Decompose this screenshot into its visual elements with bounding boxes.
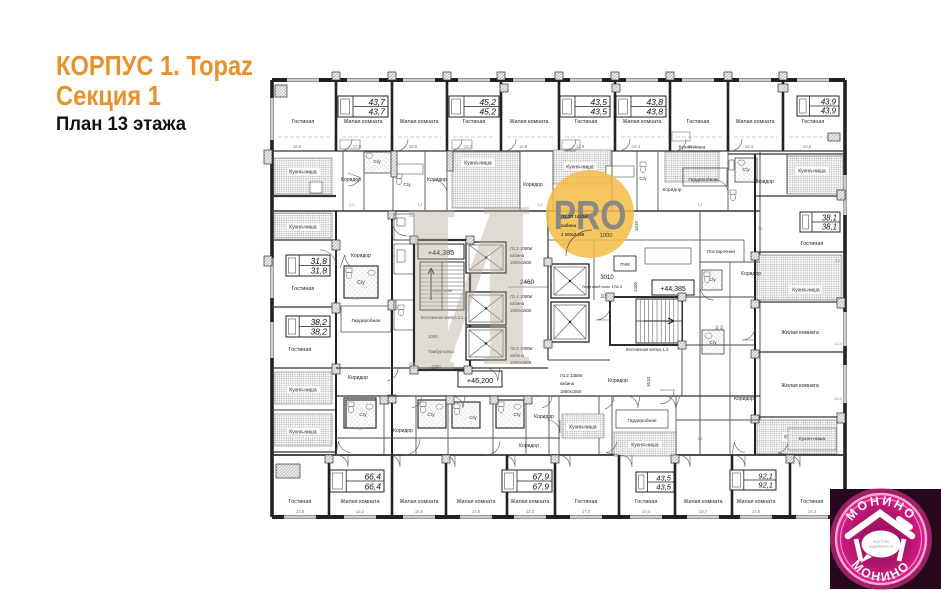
svg-text:5,8: 5,8 xyxy=(357,427,362,431)
svg-text:Жилая комната: Жилая комната xyxy=(511,499,550,505)
svg-text:Гостиная: Гостиная xyxy=(575,119,598,125)
svg-text:Постирочная: Постирочная xyxy=(707,249,735,254)
svg-text:Гостиная: Гостиная xyxy=(289,347,312,353)
svg-text:45,2: 45,2 xyxy=(479,97,496,107)
svg-text:14,2: 14,2 xyxy=(808,509,817,514)
svg-text:План 13 этажа: План 13 этажа xyxy=(56,114,186,135)
svg-text:Кухня-ниша: Кухня-ниша xyxy=(289,430,317,436)
svg-text:КОРПУС 1. Topaz: КОРПУС 1. Topaz xyxy=(56,50,253,81)
svg-text:38,1: 38,1 xyxy=(822,223,837,232)
svg-text:3010: 3010 xyxy=(600,275,614,281)
svg-text:Гостиная: Гостиная xyxy=(292,119,315,125)
svg-text:38,1: 38,1 xyxy=(822,214,837,223)
svg-text:12,4: 12,4 xyxy=(834,342,841,346)
svg-text:4,1: 4,1 xyxy=(697,203,702,207)
svg-text:1400: 1400 xyxy=(633,281,638,292)
svg-text:7,6: 7,6 xyxy=(757,227,762,231)
svg-text:13,2: 13,2 xyxy=(356,509,365,514)
svg-text:92,1: 92,1 xyxy=(758,472,773,481)
svg-text:1610: 1610 xyxy=(634,220,639,231)
svg-text:8,1: 8,1 xyxy=(835,259,840,263)
svg-text:Гостиная: Гостиная xyxy=(802,119,825,125)
svg-text:Л1.1П 1451кг: Л1.1П 1451кг xyxy=(561,214,589,219)
svg-text:1850х1550: 1850х1550 xyxy=(560,389,582,394)
svg-text:Лестничная клетка 1.2: Лестничная клетка 1.2 xyxy=(626,347,669,352)
svg-text:Жилая комната: Жилая комната xyxy=(781,330,819,336)
svg-text:Гостиная: Гостиная xyxy=(575,499,598,505)
svg-text:67,9: 67,9 xyxy=(532,482,549,492)
svg-text:недвижимости: недвижимости xyxy=(869,545,893,549)
svg-text:С/у: С/у xyxy=(359,412,367,418)
svg-text:Жилая комната: Жилая комната xyxy=(623,119,662,125)
svg-text:12,2: 12,2 xyxy=(526,509,535,514)
svg-text:Гостиная: Гостиная xyxy=(801,499,824,505)
svg-text:13,5: 13,5 xyxy=(803,144,812,149)
svg-text:Гостиная: Гостиная xyxy=(289,499,312,505)
svg-text:ПЧМ: ПЧМ xyxy=(620,262,630,267)
svg-text:Кухня-ниша: Кухня-ниша xyxy=(792,288,820,294)
svg-text:Жилая комната: Жилая комната xyxy=(684,499,723,505)
svg-text:Коридор: Коридор xyxy=(534,414,554,420)
svg-text:+44,385: +44,385 xyxy=(660,286,686,293)
svg-text:Жилая комната: Жилая комната xyxy=(400,119,439,125)
svg-text:6,0: 6,0 xyxy=(349,203,354,207)
svg-text:14,6: 14,6 xyxy=(752,509,761,514)
svg-text:Кухня-ниша: Кухня-ниша xyxy=(289,225,317,231)
svg-text:10,4: 10,4 xyxy=(642,509,651,514)
svg-text:кабина: кабина xyxy=(560,381,575,386)
svg-text:Коридор: Коридор xyxy=(608,378,628,384)
svg-text:Кухня-ниша: Кухня-ниша xyxy=(631,443,659,449)
svg-text:14,0: 14,0 xyxy=(464,144,473,149)
svg-text:92,1: 92,1 xyxy=(758,481,773,490)
svg-text:38,2: 38,2 xyxy=(310,317,327,327)
svg-text:12,8: 12,8 xyxy=(519,144,528,149)
svg-text:43,9: 43,9 xyxy=(821,98,837,107)
svg-text:Кухня-ниша: Кухня-ниша xyxy=(566,165,594,171)
svg-text:66,4: 66,4 xyxy=(364,472,381,482)
svg-text:Кухня-ниша: Кухня-ниша xyxy=(464,161,492,167)
svg-text:Кухня-ниша: Кухня-ниша xyxy=(289,170,317,176)
svg-text:Коридор: Коридор xyxy=(734,396,754,402)
svg-text:С/у: С/у xyxy=(469,415,477,421)
svg-text:С/у: С/у xyxy=(373,159,381,165)
svg-text:7,2: 7,2 xyxy=(353,297,358,301)
svg-text:1610: 1610 xyxy=(646,376,651,387)
svg-text:12,4: 12,4 xyxy=(745,144,754,149)
svg-text:Жилая комната: Жилая комната xyxy=(344,119,383,125)
svg-text:Коридор: Коридор xyxy=(754,179,774,185)
svg-text:Жилая комната: Жилая комната xyxy=(510,119,549,125)
svg-text:43,5: 43,5 xyxy=(590,107,607,117)
svg-text:Агентство: Агентство xyxy=(873,540,889,544)
svg-text:Жилая комната: Жилая комната xyxy=(781,383,819,389)
svg-text:31,8: 31,8 xyxy=(310,256,327,266)
svg-text:Гостиная: Гостиная xyxy=(292,286,315,292)
svg-text:Коридор: Коридор xyxy=(523,182,543,188)
svg-text:17,8: 17,8 xyxy=(353,144,362,149)
svg-text:Коридор: Коридор xyxy=(393,428,413,434)
svg-text:43,5: 43,5 xyxy=(656,474,672,483)
svg-text:38,2: 38,2 xyxy=(310,327,327,337)
svg-text:Жилая комната: Жилая комната xyxy=(341,499,380,505)
svg-text:Коридор: Коридор xyxy=(519,443,539,449)
svg-text:Коридор: Коридор xyxy=(427,177,447,183)
svg-text:С/у: С/у xyxy=(639,176,647,182)
svg-text:С/у: С/у xyxy=(742,167,750,173)
svg-text:45,2: 45,2 xyxy=(479,107,496,117)
svg-text:43,9: 43,9 xyxy=(821,107,837,116)
svg-text:3,1: 3,1 xyxy=(697,437,702,441)
svg-text:43,5: 43,5 xyxy=(590,97,607,107)
svg-text:С/у: С/у xyxy=(427,412,435,418)
svg-text:Коридор: Коридор xyxy=(348,375,368,381)
svg-text:2 100х1450: 2 100х1450 xyxy=(561,232,585,237)
svg-text:67,9: 67,9 xyxy=(532,472,549,482)
svg-text:43,8: 43,8 xyxy=(646,97,663,107)
svg-text:31,8: 31,8 xyxy=(310,266,327,276)
svg-text:Гостиная: Гостиная xyxy=(463,119,486,125)
svg-text:43,8: 43,8 xyxy=(646,107,663,117)
svg-text:Гардеробная: Гардеробная xyxy=(351,318,380,324)
svg-text:Коридор: Коридор xyxy=(351,253,371,259)
svg-text:66,4: 66,4 xyxy=(364,482,381,492)
svg-text:17,0: 17,0 xyxy=(582,509,591,514)
svg-text:+46,200: +46,200 xyxy=(467,376,493,385)
svg-text:5,2: 5,2 xyxy=(537,203,542,207)
svg-text:Гардеробная: Гардеробная xyxy=(688,177,717,183)
svg-text:Жилая комната: Жилая комната xyxy=(457,499,496,505)
svg-text:13,0: 13,0 xyxy=(409,144,418,149)
svg-text:С/у: С/у xyxy=(403,182,411,188)
svg-text:13,7: 13,7 xyxy=(699,509,708,514)
svg-text:Гостиная: Гостиная xyxy=(687,119,710,125)
svg-text:4,1: 4,1 xyxy=(417,203,422,207)
svg-text:1000: 1000 xyxy=(600,233,613,239)
svg-text:Гостиная: Гостиная xyxy=(635,499,658,505)
svg-text:Лифтовой холл 1П6.3: Лифтовой холл 1П6.3 xyxy=(582,284,623,289)
svg-text:Л1.2 1350кг: Л1.2 1350кг xyxy=(560,373,583,378)
svg-text:43,5: 43,5 xyxy=(656,483,672,492)
svg-text:43,7: 43,7 xyxy=(368,97,385,107)
svg-text:Коридор: Коридор xyxy=(741,271,761,277)
svg-text:кабина: кабина xyxy=(561,223,577,228)
svg-text:13,8: 13,8 xyxy=(296,509,305,514)
svg-text:Кухня-ниша: Кухня-ниша xyxy=(798,169,826,175)
svg-text:С/у: С/у xyxy=(513,412,521,418)
svg-text:14,4: 14,4 xyxy=(632,144,641,149)
svg-text:Жилая комната: Жилая комната xyxy=(400,499,439,505)
svg-text:15,5: 15,5 xyxy=(293,144,302,149)
svg-text:Жилая комната: Жилая комната xyxy=(737,499,776,505)
svg-text:Коридор: Коридор xyxy=(663,187,682,193)
svg-text:43,7: 43,7 xyxy=(368,107,385,117)
svg-text:16,4: 16,4 xyxy=(834,397,841,401)
svg-text:Кухня-ниша: Кухня-ниша xyxy=(569,425,597,431)
svg-text:Кухня-ниша: Кухня-ниша xyxy=(799,436,826,442)
svg-text:Секция 1: Секция 1 xyxy=(56,80,161,111)
svg-text:15,6: 15,6 xyxy=(415,509,424,514)
svg-text:Коридор: Коридор xyxy=(341,177,361,183)
svg-text:Жилая комната: Жилая комната xyxy=(736,119,775,125)
svg-text:Кухня-ниша: Кухня-ниша xyxy=(289,388,317,394)
svg-text:Гостиная: Гостиная xyxy=(801,241,824,247)
svg-text:Гардеробная: Гардеробная xyxy=(627,418,656,424)
svg-text:14,5: 14,5 xyxy=(472,509,481,514)
svg-text:С/у: С/у xyxy=(357,280,365,286)
